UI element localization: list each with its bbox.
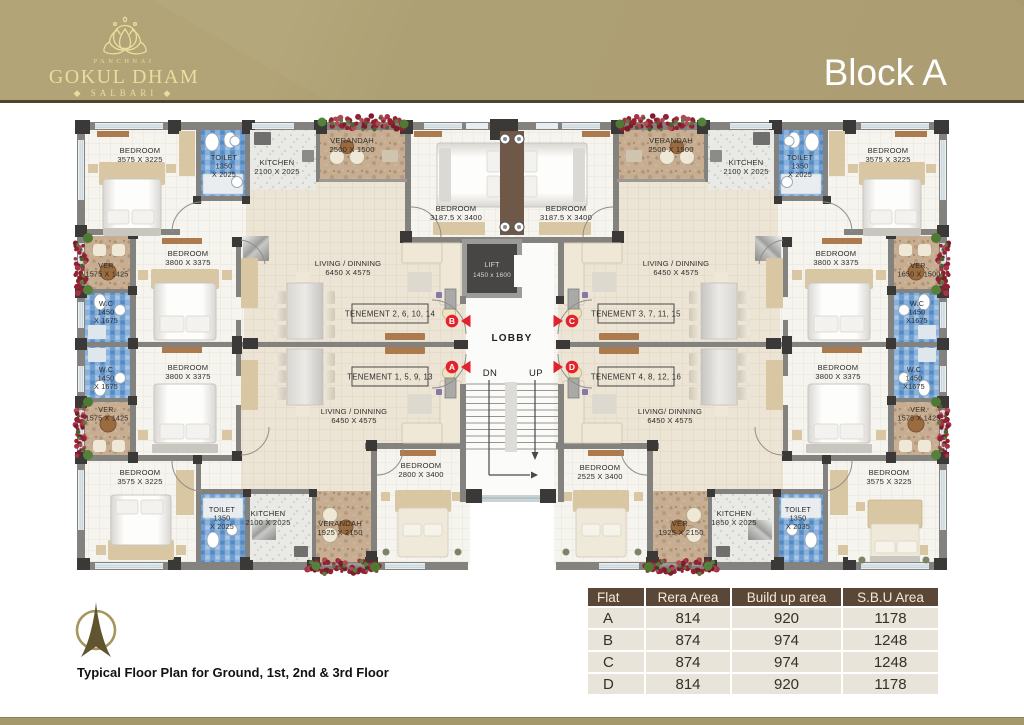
svg-text:UP: UP xyxy=(529,368,543,379)
svg-text:C: C xyxy=(569,316,575,326)
svg-text:KITCHEN: KITCHEN xyxy=(729,158,764,167)
svg-text:BEDROOM: BEDROOM xyxy=(869,468,910,477)
svg-text:TENEMENT 1, 5, 9, 13: TENEMENT 1, 5, 9, 13 xyxy=(347,373,433,382)
svg-text:VERANDAH: VERANDAH xyxy=(649,136,693,145)
svg-text:X 2025: X 2025 xyxy=(212,170,236,179)
svg-text:1575 X 1425: 1575 X 1425 xyxy=(898,414,941,423)
svg-text:3575 X 3225: 3575 X 3225 xyxy=(866,477,911,486)
svg-text:X 1675: X 1675 xyxy=(94,382,118,391)
svg-text:DN: DN xyxy=(483,368,498,379)
svg-text:2800 X 3400: 2800 X 3400 xyxy=(398,470,443,479)
svg-text:BEDROOM: BEDROOM xyxy=(868,146,909,155)
svg-text:X 2025: X 2025 xyxy=(788,170,812,179)
svg-text:LIFT: LIFT xyxy=(484,262,500,269)
svg-text:X 2025: X 2025 xyxy=(210,522,234,531)
svg-text:A: A xyxy=(449,362,455,372)
svg-text:3575 X 3225: 3575 X 3225 xyxy=(117,477,162,486)
svg-text:BEDROOM: BEDROOM xyxy=(120,468,161,477)
svg-text:6450 X 4575: 6450 X 4575 xyxy=(325,268,370,277)
svg-text:X 1675: X 1675 xyxy=(94,316,118,325)
svg-text:X1675: X1675 xyxy=(906,316,928,325)
svg-text:1925 X 2150: 1925 X 2150 xyxy=(658,528,703,537)
svg-text:LIVING / DINNING: LIVING / DINNING xyxy=(643,259,710,268)
svg-text:X1675: X1675 xyxy=(903,382,925,391)
svg-text:TENEMENT 3, 7, 11, 15: TENEMENT 3, 7, 11, 15 xyxy=(591,310,681,319)
svg-text:1575 X 1425: 1575 X 1425 xyxy=(86,414,129,423)
svg-text:BEDROOM: BEDROOM xyxy=(818,363,859,372)
svg-text:BEDROOM: BEDROOM xyxy=(401,461,442,470)
svg-text:TENEMENT 4, 8, 12, 16: TENEMENT 4, 8, 12, 16 xyxy=(591,373,681,382)
svg-text:1450 x 1600: 1450 x 1600 xyxy=(473,272,511,279)
svg-text:X 2035: X 2035 xyxy=(786,522,810,531)
svg-text:6450 X 4575: 6450 X 4575 xyxy=(647,416,692,425)
svg-text:VERANDAH: VERANDAH xyxy=(318,519,362,528)
svg-text:VERANDAH: VERANDAH xyxy=(330,136,374,145)
svg-text:KITCHEN: KITCHEN xyxy=(260,158,295,167)
svg-text:LOBBY: LOBBY xyxy=(492,333,533,344)
svg-text:KITCHEN: KITCHEN xyxy=(717,509,752,518)
svg-text:3575 X 3225: 3575 X 3225 xyxy=(117,155,162,164)
svg-text:3800 X 3375: 3800 X 3375 xyxy=(165,258,210,267)
svg-text:LIVING / DINNING: LIVING / DINNING xyxy=(315,259,382,268)
svg-text:BEDROOM: BEDROOM xyxy=(580,463,621,472)
svg-text:1575 X 1425: 1575 X 1425 xyxy=(86,270,129,279)
svg-text:6450 X 4575: 6450 X 4575 xyxy=(331,416,376,425)
svg-text:1850 X 2025: 1850 X 2025 xyxy=(711,518,756,527)
svg-text:BEDROOM: BEDROOM xyxy=(816,249,857,258)
svg-text:2500 X 1500: 2500 X 1500 xyxy=(329,145,374,154)
svg-text:3800 X 3375: 3800 X 3375 xyxy=(813,258,858,267)
svg-text:BEDROOM: BEDROOM xyxy=(120,146,161,155)
svg-text:BEDROOM: BEDROOM xyxy=(546,204,587,213)
svg-text:2100 X 2025: 2100 X 2025 xyxy=(723,167,768,176)
svg-text:BEDROOM: BEDROOM xyxy=(168,249,209,258)
svg-text:3800 X 3375: 3800 X 3375 xyxy=(815,372,860,381)
svg-text:BEDROOM: BEDROOM xyxy=(168,363,209,372)
svg-text:6450 X 4575: 6450 X 4575 xyxy=(653,268,698,277)
svg-text:B: B xyxy=(449,316,455,326)
svg-text:LIVING/ DINNING: LIVING/ DINNING xyxy=(638,407,702,416)
svg-text:2500 X 1500: 2500 X 1500 xyxy=(648,145,693,154)
svg-text:2525 X 3400: 2525 X 3400 xyxy=(577,472,622,481)
svg-text:2100 X 2025: 2100 X 2025 xyxy=(245,518,290,527)
svg-text:KITCHEN: KITCHEN xyxy=(251,509,286,518)
svg-text:LIVING / DINNING: LIVING / DINNING xyxy=(321,407,388,416)
svg-text:VER.: VER. xyxy=(672,519,691,528)
svg-text:3187.5 X 3400: 3187.5 X 3400 xyxy=(430,213,482,222)
svg-text:TENEMENT 2, 6, 10, 14: TENEMENT 2, 6, 10, 14 xyxy=(345,310,436,319)
svg-text:2100 X 2025: 2100 X 2025 xyxy=(254,167,299,176)
svg-text:3575 X 3225: 3575 X 3225 xyxy=(865,155,910,164)
svg-text:1650 X 1500: 1650 X 1500 xyxy=(898,270,941,279)
svg-text:BEDROOM: BEDROOM xyxy=(436,204,477,213)
svg-text:3800 X 3375: 3800 X 3375 xyxy=(165,372,210,381)
svg-text:3187.5 X 3400: 3187.5 X 3400 xyxy=(540,213,592,222)
svg-text:1925 X 2150: 1925 X 2150 xyxy=(317,528,362,537)
svg-text:D: D xyxy=(569,362,575,372)
